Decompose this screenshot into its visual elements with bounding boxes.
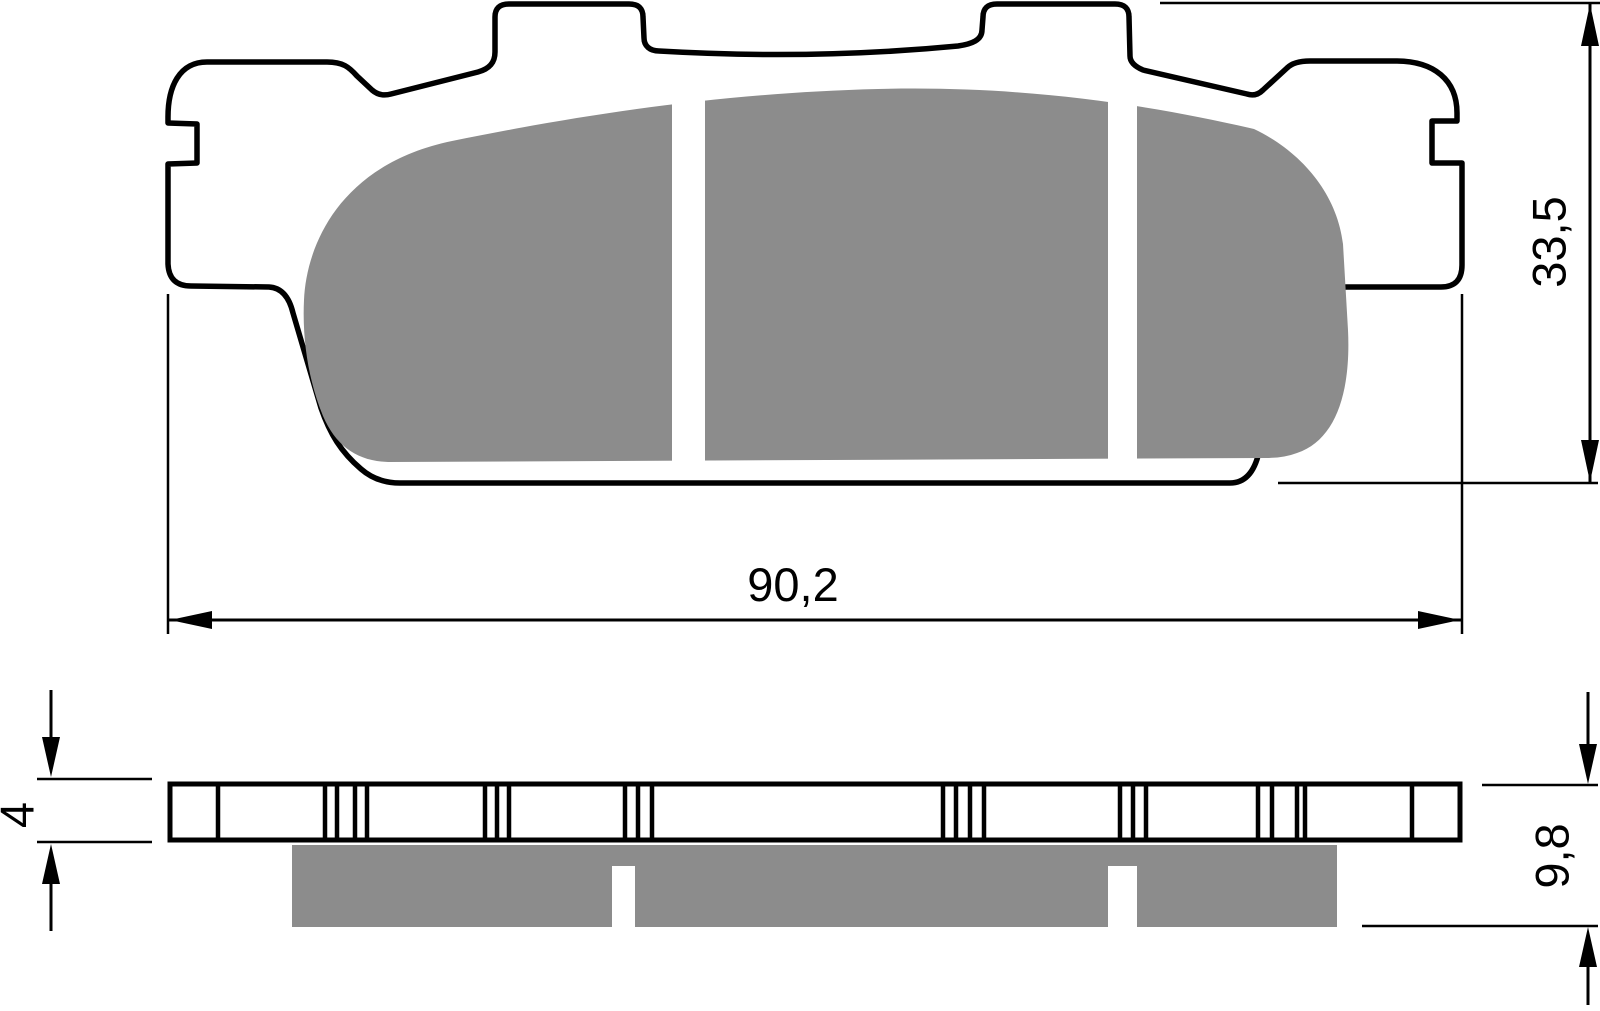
arrowhead-width-right xyxy=(1418,611,1460,629)
brake-pad-drawing: 90,2 33,5 4 9,8 xyxy=(0,0,1600,1011)
technical-drawing-page: 90,2 33,5 4 9,8 xyxy=(0,0,1600,1011)
friction-slot-right xyxy=(1108,866,1137,928)
backing-plate-side-view xyxy=(170,784,1460,840)
arrowhead-total-down xyxy=(1579,744,1597,784)
top-view xyxy=(168,4,1462,483)
dimension-label-width: 90,2 xyxy=(747,558,838,611)
friction-material-side-view xyxy=(292,845,1337,927)
side-view xyxy=(170,784,1460,928)
friction-groove-left xyxy=(672,80,705,470)
dimension-label-total-thickness: 9,8 xyxy=(1525,823,1578,888)
arrowhead-width-left xyxy=(170,611,212,629)
dimension-plate-thickness: 4 xyxy=(0,690,152,931)
arrowhead-height-bottom xyxy=(1581,440,1599,482)
friction-groove-right xyxy=(1108,80,1137,470)
arrowhead-plate-down xyxy=(42,737,60,777)
dimension-label-plate-thickness: 4 xyxy=(0,802,43,828)
arrowhead-plate-up xyxy=(42,844,60,884)
dimension-label-height: 33,5 xyxy=(1522,196,1575,287)
dimension-total-thickness: 9,8 xyxy=(1362,692,1598,1005)
arrowhead-height-top xyxy=(1581,4,1599,46)
friction-slot-left xyxy=(612,866,635,928)
friction-material-top-view xyxy=(304,89,1349,462)
arrowhead-total-up xyxy=(1579,927,1597,967)
